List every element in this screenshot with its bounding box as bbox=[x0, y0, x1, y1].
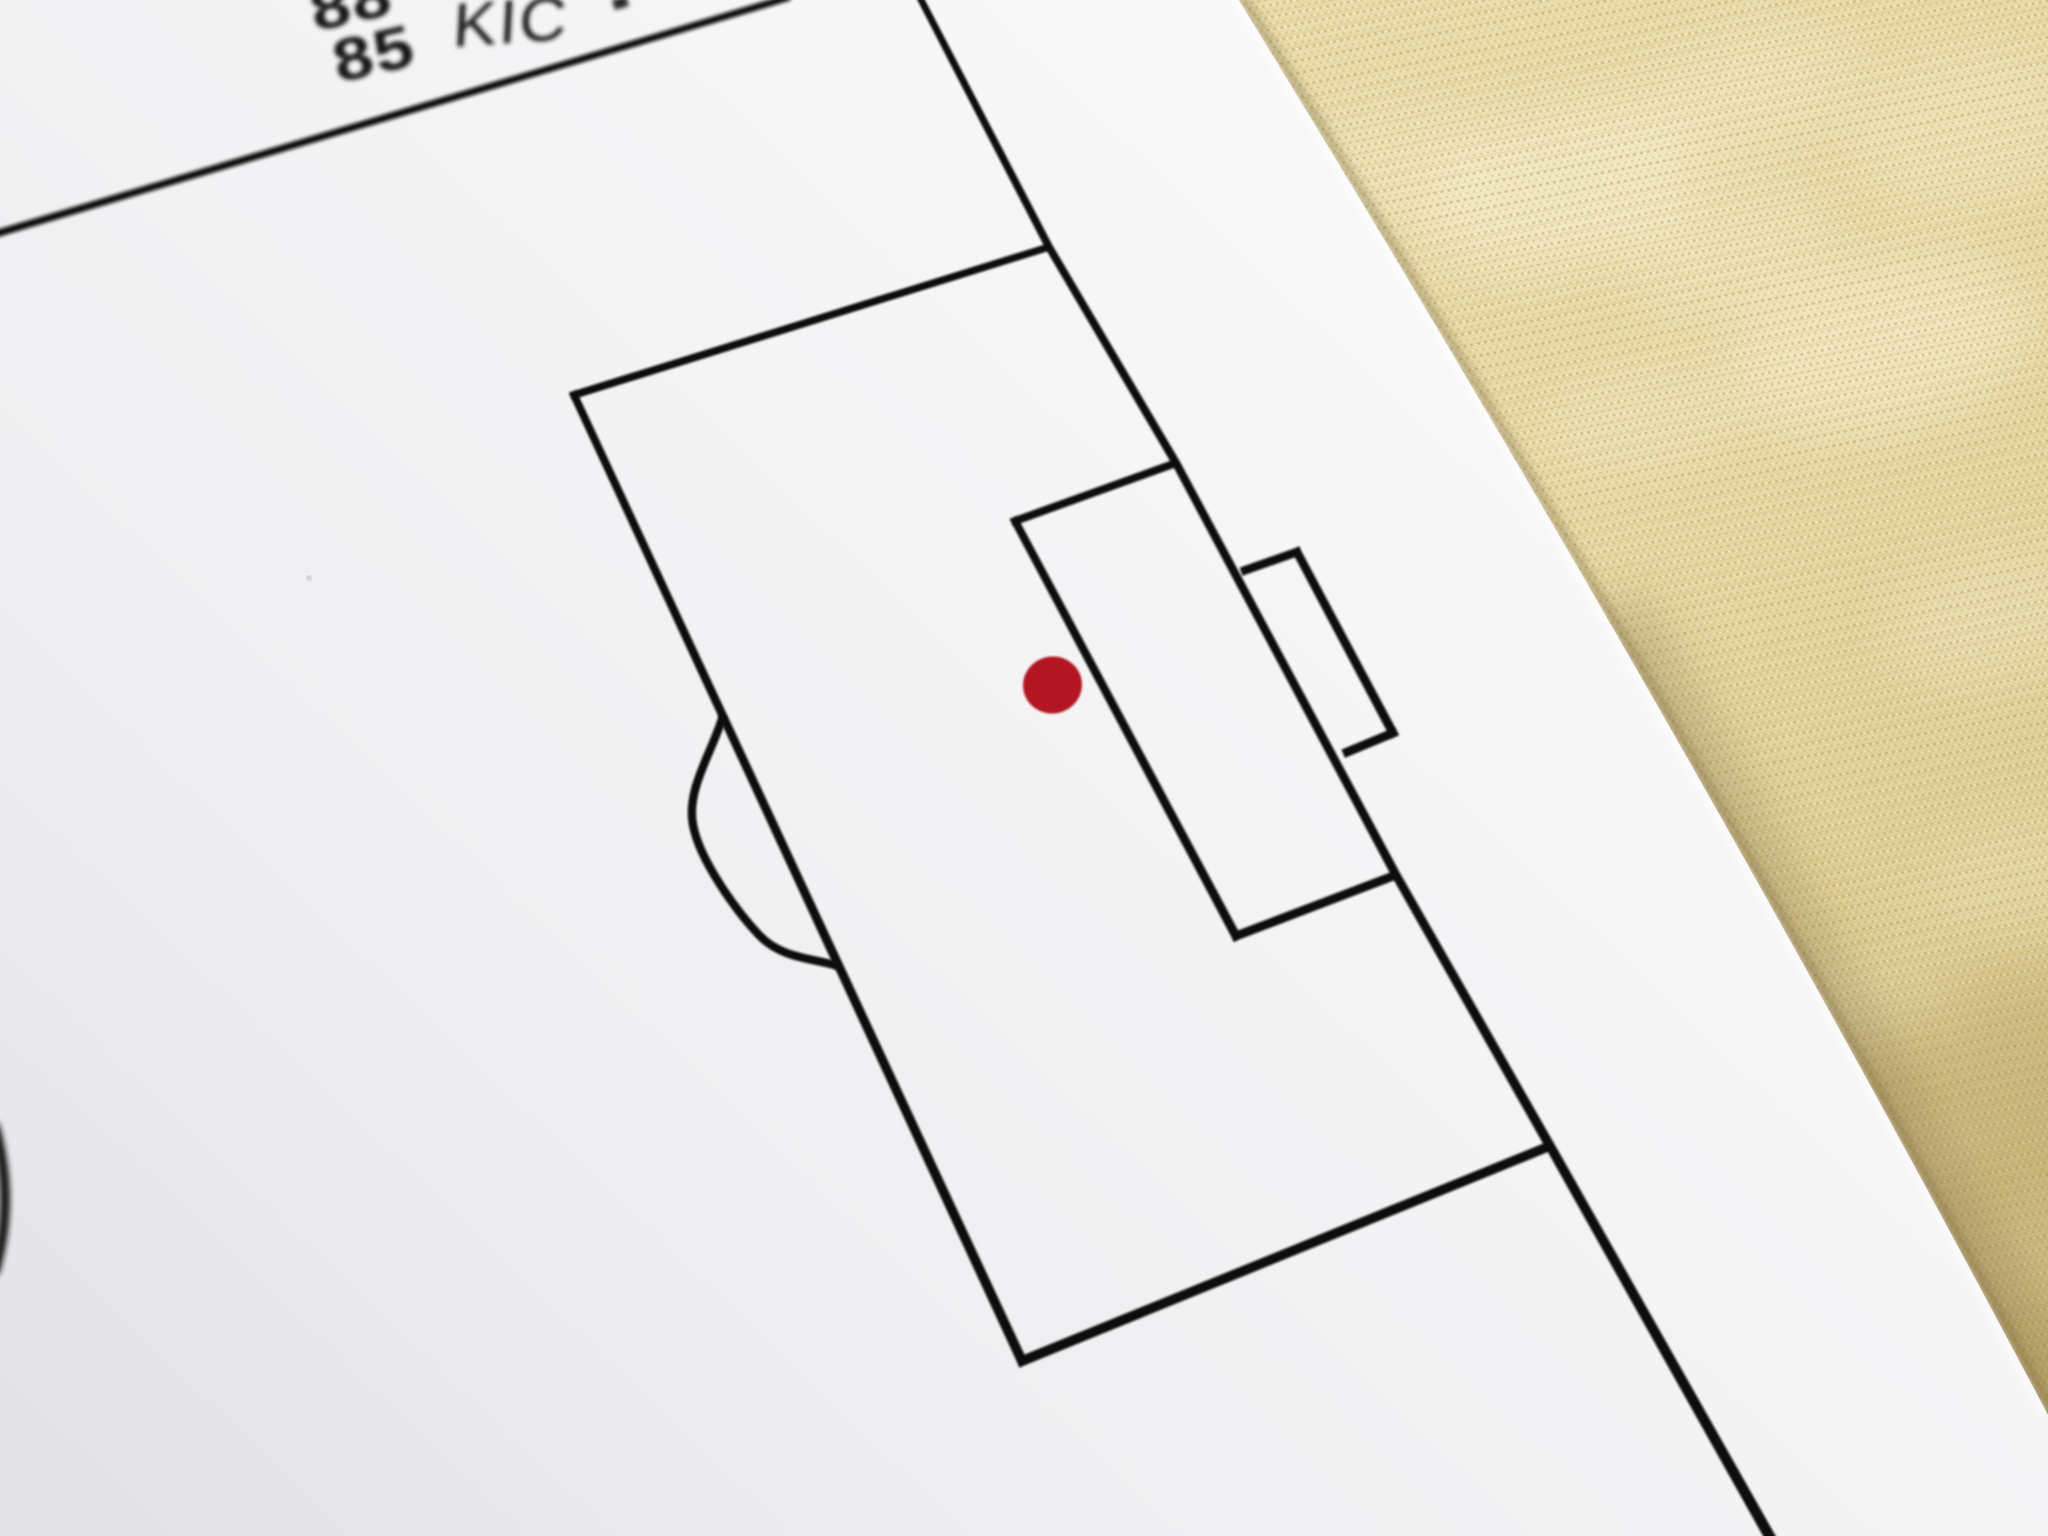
svg-text:KIC: KIC bbox=[451, 0, 570, 61]
